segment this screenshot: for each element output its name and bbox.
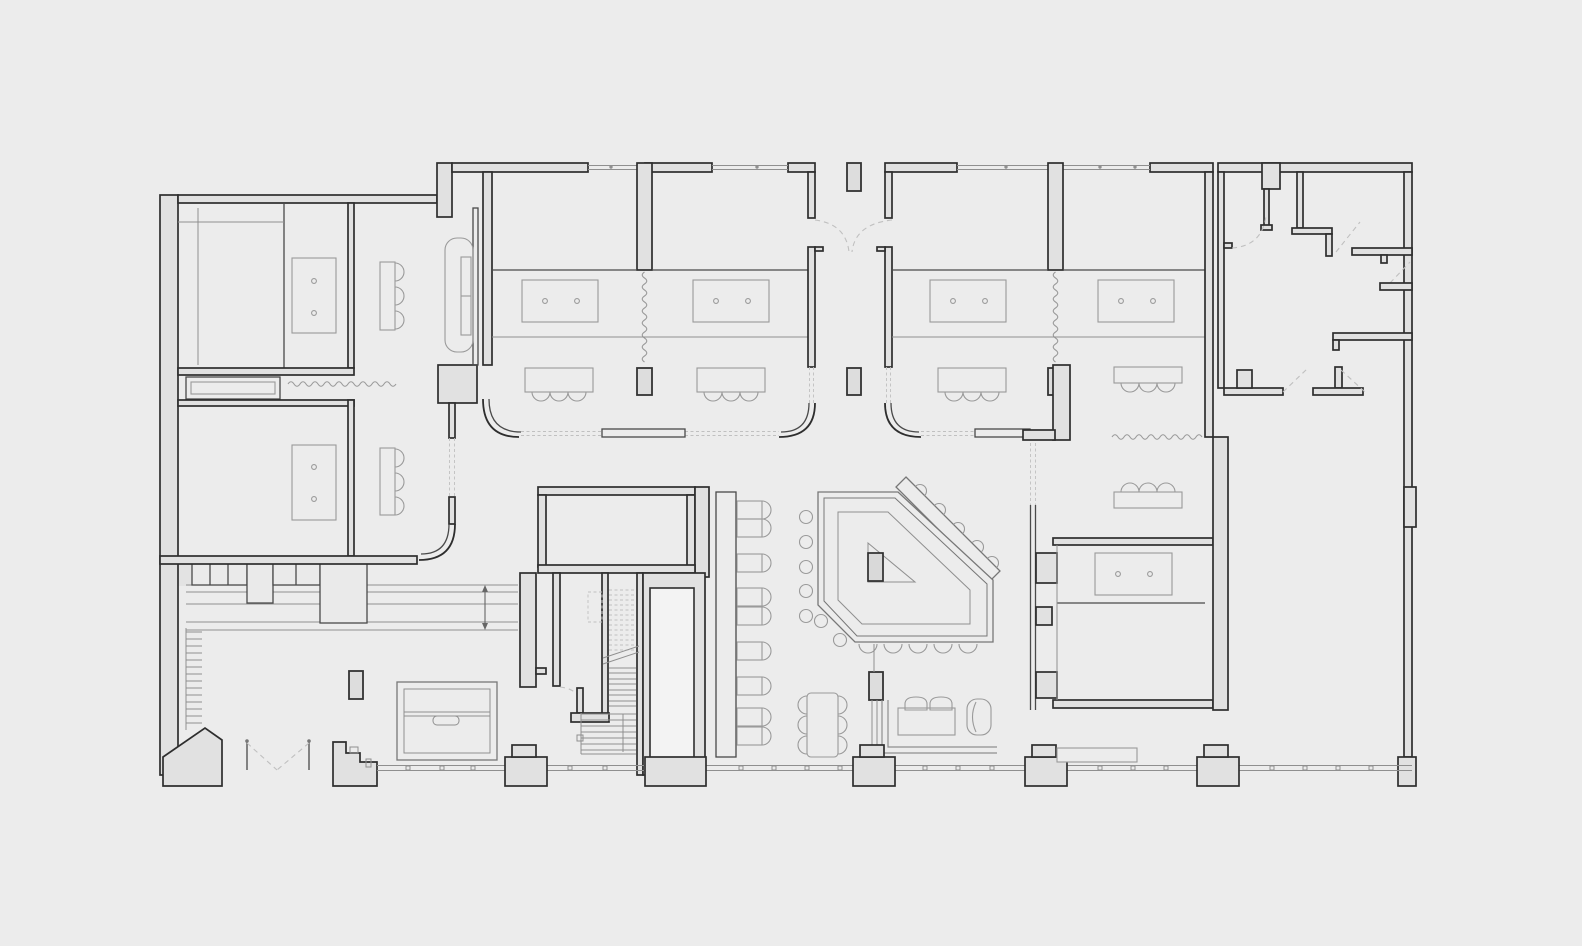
background [0,0,1582,946]
column [847,368,861,395]
floor-plan [0,0,1582,946]
column [349,671,363,699]
guest-bed [693,280,769,322]
guest-bed [1095,553,1172,595]
guest-bed [930,280,1006,322]
elevator-shaft [650,588,694,764]
column [847,163,861,191]
guest-bed [1098,280,1174,322]
column [869,672,883,700]
party-wall [1213,437,1228,710]
guest-bed [292,258,336,333]
bar-service-block [868,553,883,581]
guest-bed [292,445,336,520]
bench [1057,748,1137,762]
column [637,368,652,395]
guest-bed [522,280,598,322]
screenshot-canvas [0,0,1582,946]
